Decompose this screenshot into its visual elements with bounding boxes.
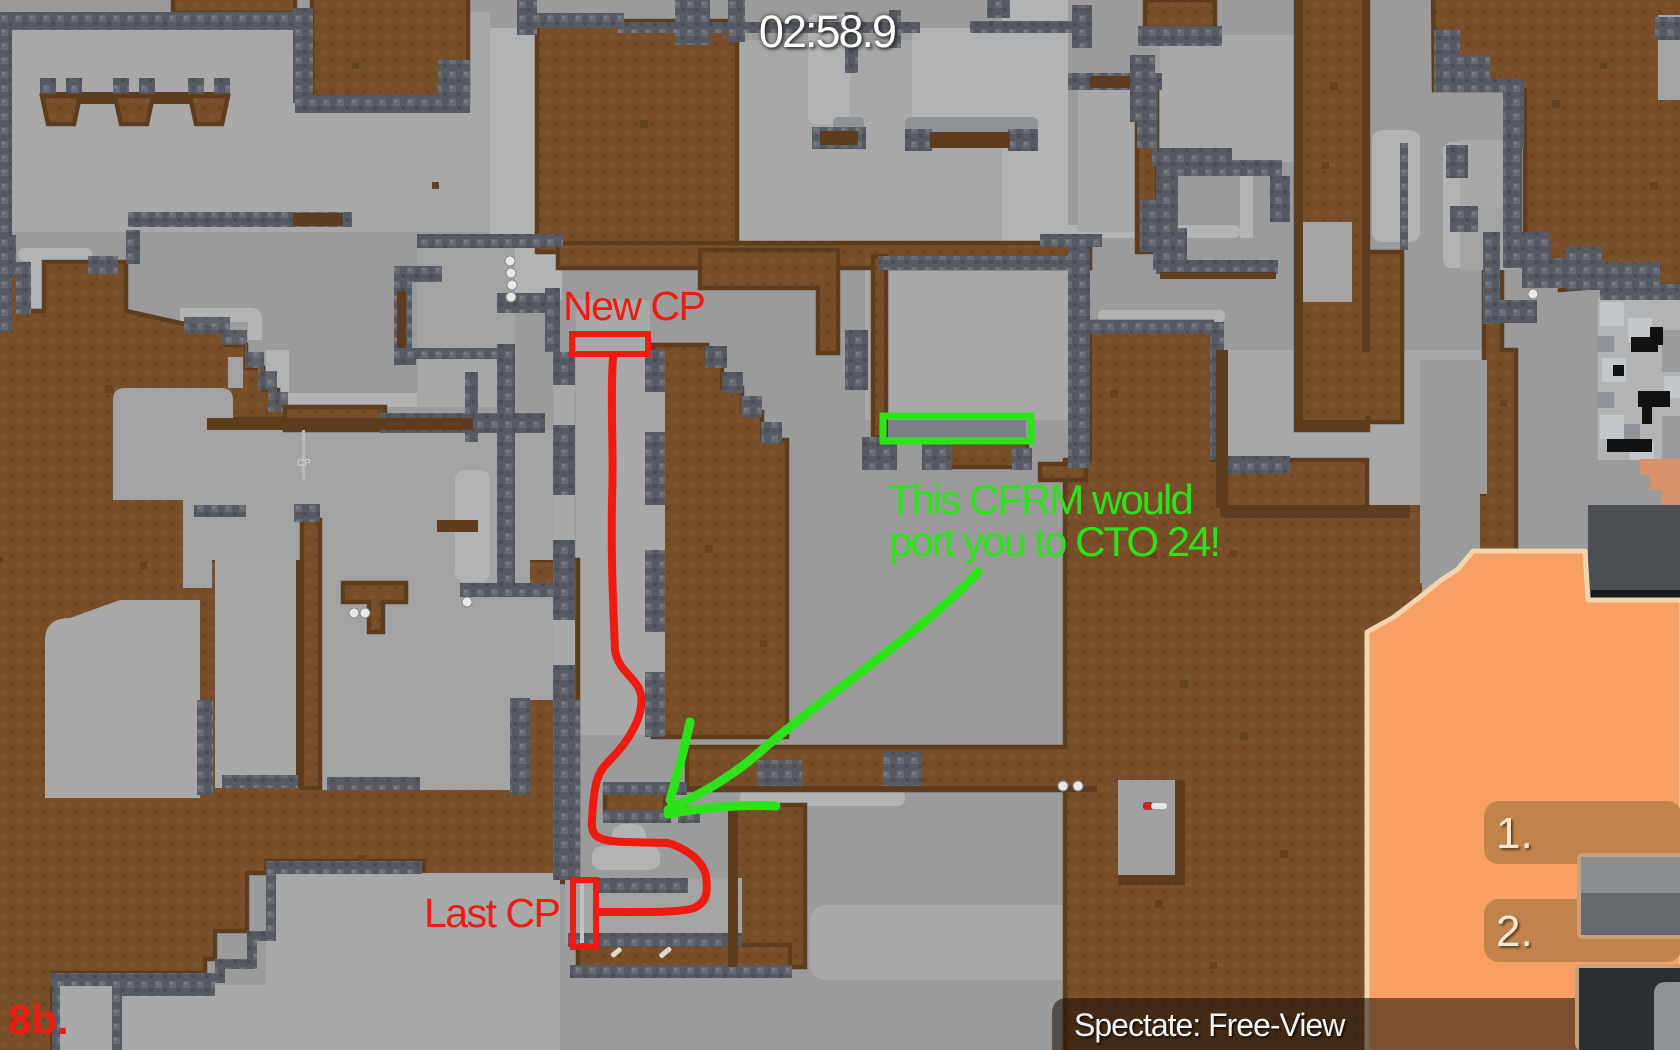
svg-text:Spectate: Free-View: Spectate: Free-View — [1074, 1007, 1346, 1043]
svg-text:1.: 1. — [1496, 809, 1533, 858]
svg-text:02:58.9: 02:58.9 — [759, 6, 895, 57]
svg-text:Last CP: Last CP — [424, 890, 559, 936]
svg-text:8b.: 8b. — [8, 996, 69, 1043]
svg-text:CP: CP — [297, 458, 311, 469]
svg-text:port you to CTO 24!: port you to CTO 24! — [889, 518, 1219, 565]
svg-text:2.: 2. — [1496, 907, 1533, 956]
svg-text:This CFRM would: This CFRM would — [888, 476, 1192, 523]
svg-text:New CP: New CP — [563, 283, 705, 329]
